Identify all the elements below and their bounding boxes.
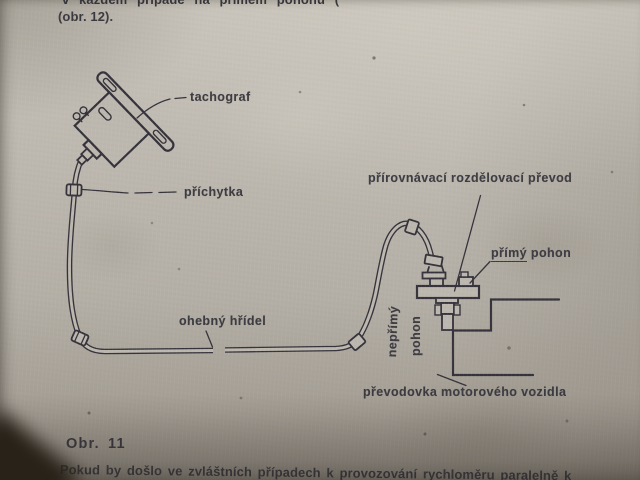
cable-clamp-lower [71,330,89,346]
label-neprimy-vertical: nepřímý [385,306,401,358]
label-primy-pohon: přímý pohon [491,246,571,260]
label-primy-pohon-word1: přímý [491,246,527,262]
label-rozdelovaci-prevod: přírovnávací rozdělovací převod [368,171,572,185]
label-ohebny-hridel: ohebný hřídel [179,314,266,328]
top-text-line-2: (obr. 12). [58,9,113,24]
cable-clamp-upper [66,184,81,196]
figure-diagram [0,0,640,480]
figure-caption: Obr. 11 [66,436,126,452]
gearbox-outline [453,300,559,376]
distribution-gear-drawing [417,255,479,330]
label-prevodovka: převodovka motorového vozidla [363,385,566,399]
label-primy-pohon-word2: pohon [531,246,571,260]
top-text-line-cropped: v každém případě na přímém pohonu ( [62,0,339,7]
tachograph-drawing [45,70,176,201]
book-page-photo: v každém případě na přímém pohonu ( (obr… [0,0,640,480]
label-tachograf: tachograf [190,90,251,104]
label-pohon-vertical: pohon [409,316,423,356]
label-prichytka: příchytka [184,185,243,199]
